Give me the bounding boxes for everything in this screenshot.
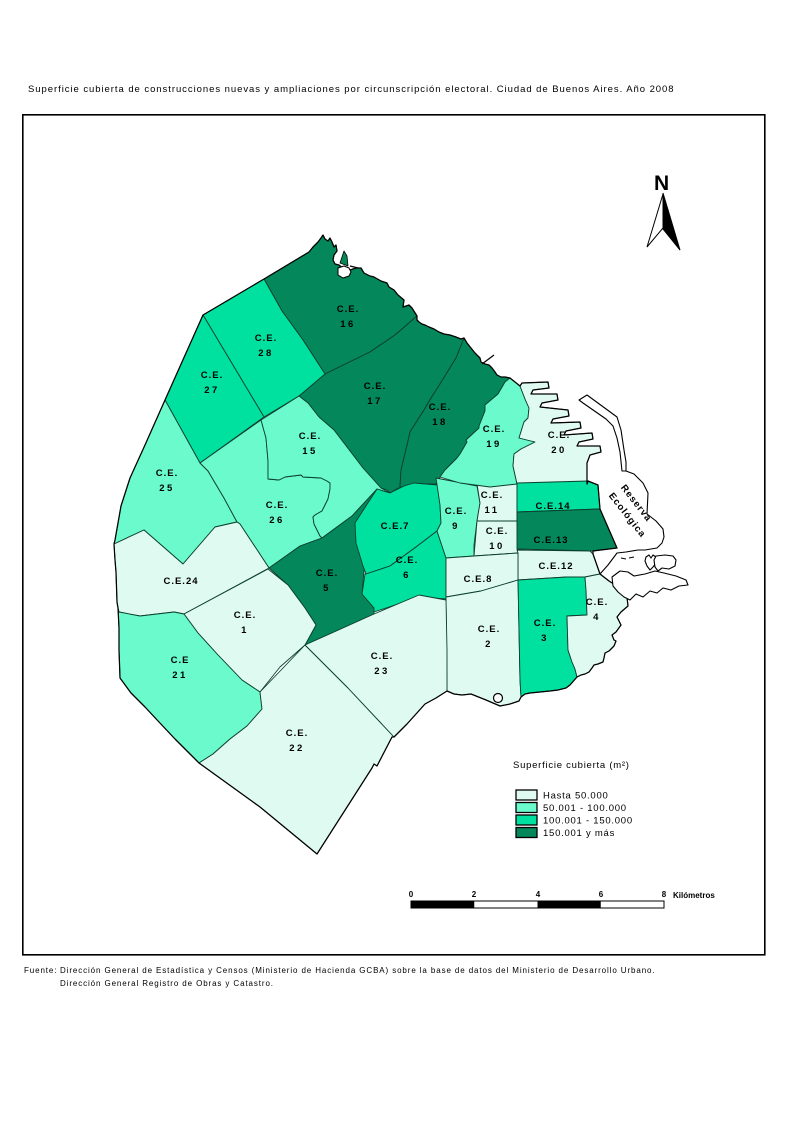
svg-text:C.E.: C.E. [201, 370, 223, 381]
svg-text:25: 25 [159, 483, 175, 494]
svg-text:C.E.: C.E. [445, 506, 467, 517]
svg-text:15: 15 [302, 446, 318, 457]
svg-text:4: 4 [536, 890, 541, 899]
svg-text:C.E.: C.E. [371, 651, 393, 662]
svg-text:C.E.: C.E. [534, 618, 556, 629]
svg-text:2: 2 [472, 890, 477, 899]
svg-text:C.E.: C.E. [234, 610, 256, 621]
svg-text:C.E.8: C.E.8 [464, 574, 493, 585]
svg-text:C.E.: C.E. [396, 555, 418, 566]
svg-text:C.E.: C.E. [156, 468, 178, 479]
svg-text:Dirección General Registro de: Dirección General Registro de Obras y Ca… [60, 979, 274, 988]
svg-text:C.E.: C.E. [429, 402, 451, 413]
svg-text:N: N [654, 172, 669, 195]
svg-text:C.E.7: C.E.7 [381, 521, 410, 532]
svg-text:C.E.12: C.E.12 [538, 561, 573, 572]
svg-text:19: 19 [486, 439, 502, 450]
svg-text:2: 2 [485, 639, 493, 650]
svg-text:6: 6 [599, 890, 604, 899]
svg-text:5: 5 [323, 583, 331, 594]
svg-text:Dirección General de Estadísti: Dirección General de Estadística y Censo… [60, 966, 656, 975]
svg-text:C.E.: C.E. [478, 624, 500, 635]
svg-text:10: 10 [489, 541, 505, 552]
svg-text:Fuente:: Fuente: [24, 966, 57, 975]
svg-text:Superficie cubierta (m²): Superficie cubierta (m²) [513, 760, 630, 771]
svg-text:11: 11 [484, 505, 499, 516]
svg-text:C.E.: C.E. [337, 304, 359, 315]
svg-text:C.E.: C.E. [548, 430, 570, 441]
svg-text:Superficie cubierta de constru: Superficie cubierta de construcciones nu… [28, 84, 675, 95]
svg-text:22: 22 [289, 743, 305, 754]
svg-text:28: 28 [258, 348, 274, 359]
svg-text:6: 6 [403, 570, 411, 581]
svg-text:21: 21 [172, 670, 188, 681]
svg-text:50.001 - 100.000: 50.001 - 100.000 [543, 803, 627, 814]
svg-text:18: 18 [432, 417, 448, 428]
svg-text:27: 27 [204, 385, 220, 396]
svg-text:1: 1 [241, 625, 249, 636]
svg-text:C.E.: C.E. [316, 568, 338, 579]
svg-text:100.001 - 150.000: 100.001 - 150.000 [543, 816, 633, 827]
svg-text:Hasta 50.000: Hasta 50.000 [543, 791, 609, 802]
svg-text:C.E.: C.E. [299, 431, 321, 442]
svg-text:C.E.: C.E. [483, 424, 505, 435]
svg-text:8: 8 [662, 890, 667, 899]
svg-text:C.E.: C.E. [266, 500, 288, 511]
svg-text:23: 23 [374, 666, 390, 677]
svg-text:20: 20 [551, 445, 567, 456]
svg-text:4: 4 [593, 612, 601, 623]
svg-text:C.E.: C.E. [255, 333, 277, 344]
svg-text:150.001 y más: 150.001 y más [543, 828, 615, 839]
svg-text:C.E.: C.E. [286, 728, 308, 739]
svg-text:Kilómetros: Kilómetros [673, 891, 715, 900]
svg-text:C.E.: C.E. [586, 597, 608, 608]
svg-text:17: 17 [367, 396, 383, 407]
svg-text:C.E: C.E [171, 655, 190, 666]
svg-text:C.E.13: C.E.13 [533, 535, 568, 546]
svg-text:16: 16 [340, 319, 356, 330]
svg-text:C.E.: C.E. [364, 381, 386, 392]
svg-text:C.E.: C.E. [481, 490, 503, 501]
svg-text:26: 26 [269, 515, 285, 526]
svg-text:0: 0 [409, 890, 414, 899]
svg-text:C.E.14: C.E.14 [535, 501, 570, 512]
svg-text:3: 3 [541, 633, 549, 644]
svg-text:C.E.24: C.E.24 [163, 576, 198, 587]
svg-text:C.E.: C.E. [486, 526, 508, 537]
svg-text:9: 9 [452, 521, 460, 532]
